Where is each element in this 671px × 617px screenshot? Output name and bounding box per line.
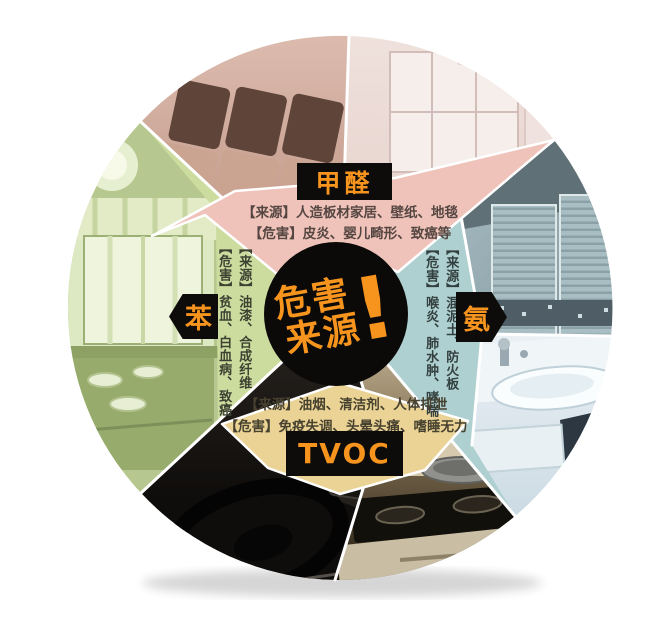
hazard-sources-infographic: 甲醛 【来源】人造板材家居、壁纸、地毯 【危害】皮炎、婴儿畸形、致癌等 【来源】…	[0, 0, 671, 617]
tvoc-label: TVOC	[286, 431, 403, 476]
ammonia-label: 氨	[463, 298, 490, 337]
center-hazard-badge: 危害 来源 !	[264, 242, 408, 386]
formaldehyde-label: 甲醛	[297, 163, 392, 200]
benzene-label: 苯	[185, 297, 212, 336]
ammonia-text-columns: 【来源】混泥土、防火板 【危害】喉炎、肺水肿、哮喘	[420, 242, 460, 412]
benzene-source-text: 【来源】油漆、合成纤维	[233, 241, 253, 411]
formaldehyde-harm-text: 【危害】皮炎、婴儿畸形、致癌等	[160, 222, 540, 242]
formaldehyde-source-text: 【来源】人造板材家居、壁纸、地毯	[160, 201, 540, 221]
tvoc-source-text: 【来源】油烟、清洁剂、人体排泄	[166, 393, 526, 413]
benzene-text-columns: 【来源】油漆、合成纤维 【危害】贫血、白血病、致癌	[213, 241, 253, 411]
ammonia-harm-text: 【危害】喉炎、肺水肿、哮喘	[420, 242, 440, 412]
